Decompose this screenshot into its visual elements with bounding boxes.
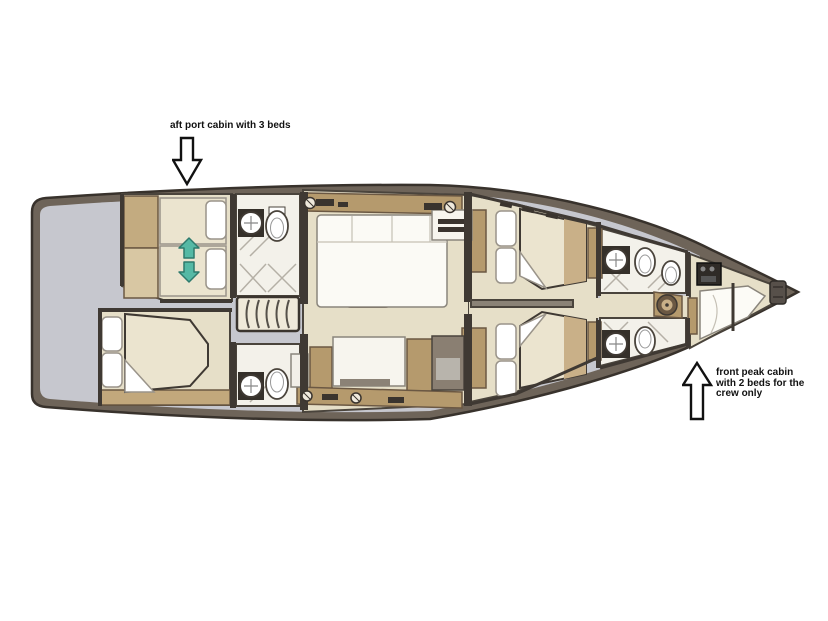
dark-utility-unit [432, 336, 464, 390]
salon-sofa [317, 215, 447, 307]
galley-cabinet-left [310, 347, 332, 389]
front-peak-cabin-label-line1: front peak cabin [716, 368, 826, 379]
fwd-port-pillow-2 [496, 248, 516, 283]
aft-port-wardrobe-lower [124, 248, 158, 298]
fwd-starboard-bed-runner [564, 316, 586, 379]
center-toilet [662, 261, 680, 285]
aft-starboard-toilet [266, 369, 288, 399]
corridor-sliding-door [470, 299, 574, 308]
companionway-stairs [237, 297, 299, 331]
down-arrow-icon [172, 136, 204, 188]
aft-port-pillow-2 [206, 249, 226, 289]
up-arrow-icon [682, 361, 714, 423]
yacht-deck-plan-drawing [0, 0, 828, 621]
aft-port-wardrobe-upper [124, 196, 158, 248]
fwd-starboard-pillow-1 [496, 324, 516, 359]
aft-starboard-pillow-1 [102, 317, 122, 351]
galley-cabinet-right [407, 339, 433, 391]
peak-equipment [697, 263, 721, 285]
aft-port-cabin-annotation: aft port cabin with 3 beds [170, 121, 310, 132]
aft-port-pillow-1 [206, 201, 226, 239]
galley-counter [333, 337, 405, 386]
aft-starboard-tan-band [100, 390, 230, 405]
fwd-port-toilet [635, 248, 655, 276]
aft-port-cabin-label: aft port cabin with 3 beds [170, 120, 291, 131]
fwd-port-pillow-1 [496, 211, 516, 246]
fwd-port-bed-runner [564, 219, 586, 285]
front-peak-cabin-annotation: front peak cabin with 2 beds for the cre… [716, 368, 826, 400]
front-peak-cabin-label-line3: crew only [716, 389, 826, 400]
fwd-starboard-pillow-2 [496, 361, 516, 396]
boat-floor-plan-page: aft port cabin with 3 beds front peak ca… [0, 0, 828, 621]
fwd-starboard-toilet [635, 327, 655, 355]
bow-anchor-locker [770, 281, 786, 304]
galley-sink-recess [340, 379, 390, 386]
aft-port-toilet [266, 211, 288, 241]
aft-starboard-pillow-2 [102, 353, 122, 387]
